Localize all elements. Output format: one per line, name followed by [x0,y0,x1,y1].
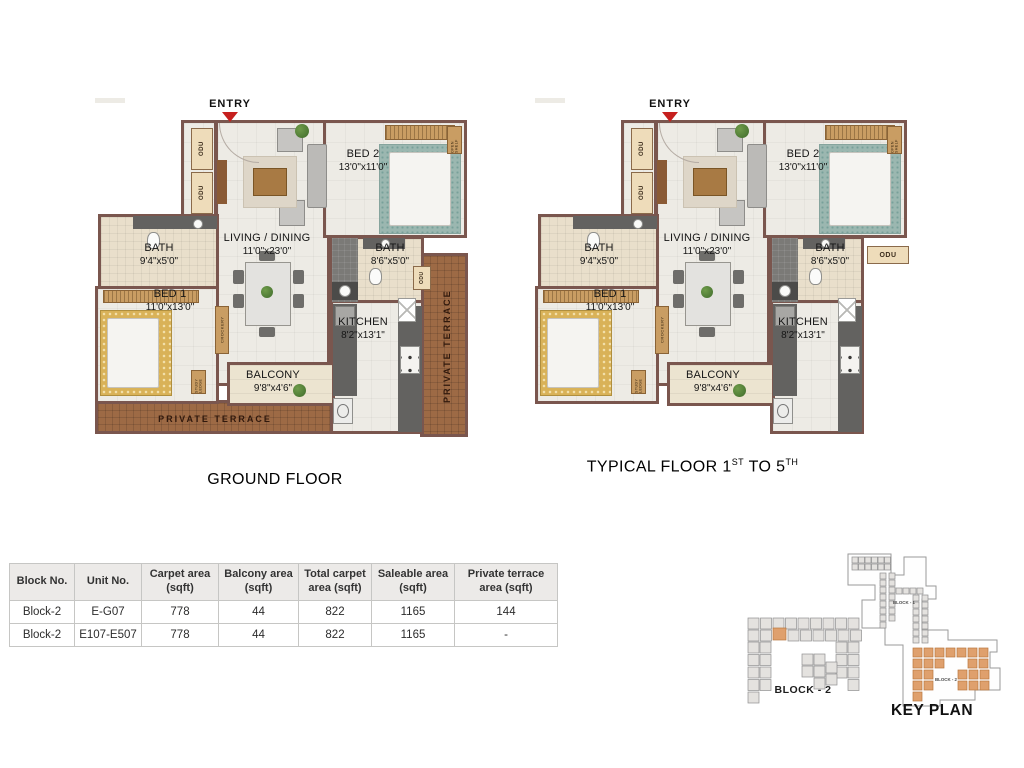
table-cell: 44 [219,624,299,647]
label-open-shelf: OPEN SHELF [887,126,902,154]
keyplan-unit [878,564,884,570]
floorplan-typical: LIVING / DINING11'0"x23'0"BED 213'0"x11'… [535,98,910,443]
wash-basin [339,285,351,297]
keyplan-unit [979,659,988,668]
room-label-bed2: BED 213'0"x11'0" [303,148,423,174]
keyplan-unit [880,615,886,621]
keyplan-unit [748,680,759,691]
table-cell: Block-2 [10,624,75,647]
block1-label: BLOCK - 1 [893,600,916,605]
table-header-row: Block No.Unit No.Carpet area (sqft)Balco… [10,564,558,601]
entry-opening [95,98,125,103]
keyplan-unit [760,667,771,678]
wardrobe [825,125,895,140]
keyplan-unit [913,692,922,701]
keyplan-unit [979,648,988,657]
col-header: Balcony area (sqft) [219,564,299,601]
private-terrace-label: PRIVATE TERRACE [98,414,332,424]
table-cell: 1165 [372,624,455,647]
keyplan-unit [802,654,813,665]
keyplan-unit [814,654,825,665]
keyplan-unit [836,655,847,666]
keyplan-unit [798,618,809,629]
keyplan-unit [748,692,759,703]
keyplan-unit [913,648,922,657]
private-terrace-label: PRIVATE TERRACE [439,286,455,406]
dining-chair [233,294,244,308]
keyplan-unit [913,609,919,615]
keyplan-unit [748,618,759,629]
keyplan-unit [859,557,865,563]
keyplan-unit [880,622,886,628]
room-name: BATH [330,242,450,256]
keyplan-unit [924,681,933,690]
table-plant [261,286,273,298]
room-label-living: LIVING / DINING11'0"x23'0" [647,232,767,258]
room-dim: 8'6"x5'0" [330,256,450,269]
label-study-ledge: STUDY LEDGE [631,370,646,394]
keyplan-unit [826,630,837,641]
entry-label: ENTRY [180,98,280,111]
keyplan-unit [922,637,928,643]
room-label-living: LIVING / DINING11'0"x23'0" [207,232,327,258]
entry-marker-icon [222,112,238,122]
dining-chair [673,294,684,308]
mini-block2-label: BLOCK - 2 [763,684,843,696]
room-dim: 9'4"x5'0" [539,256,659,269]
ground-floor-title: GROUND FLOOR [170,471,380,489]
keyplan-unit [913,659,922,668]
dining-chair [733,294,744,308]
washing-machine [773,398,793,424]
room-label-bed1: BED 111'0"x13'0" [550,288,670,314]
keyplan-unit [761,618,772,629]
label-crockery: CROCKERY [655,306,669,354]
room-dim: 11'0"x13'0" [110,302,230,315]
keyplan-unit [859,564,865,570]
typical-title-text2: TO 5 [744,458,785,475]
room-dim: 13'0"x11'0" [303,162,423,175]
room-label-bed1: BED 111'0"x13'0" [110,288,230,314]
dining-chair [233,270,244,284]
table-cell: 144 [455,601,558,624]
toilet [369,268,382,285]
keyplan-unit [969,670,978,679]
keyplan-unit [880,601,886,607]
keyplan-unit [872,557,878,563]
table-cell: 822 [299,624,372,647]
keyplan-unit [910,588,916,594]
label-odu: ODU [631,128,653,170]
keyplan-unit [980,670,989,679]
floorplan-ground: PRIVATE TERRACEPRIVATE TERRACELIVING / D… [95,98,470,443]
keyplan-unit [889,615,895,621]
keyplan-unit [958,681,967,690]
dining-chair [733,270,744,284]
keyplan-unit [802,666,813,677]
room-dim: 9'8"x4'6" [653,383,773,396]
room-label-bath1: BATH9'4"x5'0" [539,242,659,268]
room-dim: 11'0"x23'0" [207,246,327,259]
label-crockery: CROCKERY [215,306,229,354]
keyplan-unit [748,642,759,653]
keyplan-unit [760,642,771,653]
table-cell: 44 [219,601,299,624]
room-label-bath1: BATH9'4"x5'0" [99,242,219,268]
keyplan-unit [788,630,799,641]
keyplan-unit [851,630,862,641]
dining-chair [699,327,715,337]
keyplan-unit [823,618,834,629]
room-name: BED 2 [743,148,863,162]
room-name: BALCONY [213,369,333,383]
label-odu: ODU [413,266,431,290]
keyplan-unit [917,588,923,594]
keyplan-unit [885,557,891,563]
keyplan-unit [913,637,919,643]
room-name: BED 1 [110,288,230,302]
label-odu: ODU [867,246,909,264]
washing-machine [333,398,353,424]
plant [735,124,749,138]
dining-chair [293,294,304,308]
wash-basin [633,219,643,229]
keyplan-unit [922,602,928,608]
keyplan-unit [848,618,859,629]
stove [400,346,420,374]
room-name: KITCHEN [743,316,863,330]
brochure-canvas: PRIVATE TERRACEPRIVATE TERRACELIVING / D… [0,0,1024,768]
wash-basin [193,219,203,229]
bed [107,318,159,388]
col-header: Unit No. [75,564,142,601]
area-statement-table: Block No.Unit No.Carpet area (sqft)Balco… [9,563,558,647]
keyplan-unit [838,630,849,641]
keyplan-unit [896,588,902,594]
keyplan-unit [836,618,847,629]
room-label-bed2: BED 213'0"x11'0" [743,148,863,174]
table-cell: - [455,624,558,647]
room-dim: 9'8"x4'6" [213,383,333,396]
keyplan-unit [880,608,886,614]
keyplan-unit [935,648,944,657]
keyplan-unit [848,667,859,678]
room-name: KITCHEN [303,316,423,330]
col-header: Total carpet area (sqft) [299,564,372,601]
entry-opening [535,98,565,103]
keyplan-unit [872,564,878,570]
table-cell: 1165 [372,601,455,624]
keyplan-unit [922,616,928,622]
label-open-shelf: OPEN SHELF [447,126,462,154]
keyplan-unit [913,681,922,690]
keyplan-unit [922,595,928,601]
keyplan-unit [748,667,759,678]
room-label-kitchen: KITCHEN8'2"x13'1" [303,316,423,342]
table-cell: 778 [142,624,219,647]
plant [295,124,309,138]
table-cell: 778 [142,601,219,624]
label-odu: ODU [191,128,213,170]
typical-title-sup2: TH [785,457,798,467]
keyplan-unit [836,642,847,653]
table-cell: Block-2 [10,601,75,624]
keyplan-unit [924,648,933,657]
keyplan-unit [924,670,933,679]
label-study-ledge: STUDY LEDGE [191,370,206,394]
room-dim: 9'4"x5'0" [99,256,219,269]
keyplan-unit [922,623,928,629]
room-dim: 8'2"x13'1" [743,330,863,343]
stove [840,346,860,374]
keyplan-unit [957,648,966,657]
room-dim: 11'0"x13'0" [550,302,670,315]
room-dim: 8'2"x13'1" [303,330,423,343]
keyplan-unit [913,630,919,636]
keyplan-unit [865,557,871,563]
col-header: Carpet area (sqft) [142,564,219,601]
keyplan-unit [968,648,977,657]
table-cell: E-G07 [75,601,142,624]
room-name: BED 2 [303,148,423,162]
keyplan-unit [826,662,837,673]
keyplan-unit [889,608,895,614]
room-name: BATH [99,242,219,256]
keyplan-unit [848,642,859,653]
table-plant [701,286,713,298]
keyplan-unit [760,655,771,666]
keyplan-unit [748,630,759,641]
keyplan-unit [880,594,886,600]
keyplan-unit [880,580,886,586]
room-name: BED 1 [550,288,670,302]
coffee-table [253,168,287,196]
room-label-balcony: BALCONY9'8"x4'6" [213,369,333,395]
label-odu: ODU [631,172,653,214]
typical-title-text: TYPICAL FLOOR 1 [587,458,732,475]
keyplan-unit [958,670,967,679]
typical-floor-title: TYPICAL FLOOR 1ST TO 5TH [565,457,820,476]
keyplan-unit [922,630,928,636]
wardrobe [385,125,455,140]
keyplan-unit [801,630,812,641]
keyplan-unit [865,564,871,570]
col-header: Block No. [10,564,75,601]
keyplan-unit [811,618,822,629]
room-label-bath2: BATH8'6"x5'0" [330,242,450,268]
keyplan-unit [922,609,928,615]
dining-chair [259,327,275,337]
bath-counter [133,216,217,229]
keyplan-unit [878,557,884,563]
keyplan-unit [889,587,895,593]
entry-marker-icon [662,112,678,122]
dining-chair [673,270,684,284]
keyplan-unit [889,580,895,586]
tv-unit [657,160,667,204]
room-name: LIVING / DINING [207,232,327,246]
room-dim: 11'0"x23'0" [647,246,767,259]
bed [547,318,599,388]
keyplan-unit [968,659,977,668]
keyplan-unit [913,616,919,622]
coffee-table [693,168,727,196]
typical-title-sup1: ST [732,457,744,467]
block2-label: BLOCK - 2 [935,677,958,682]
keyplan-unit [748,655,759,666]
keyplan-unit [773,618,784,629]
label-odu: ODU [191,172,213,214]
wash-basin [779,285,791,297]
keyplan-unit [903,588,909,594]
keyplan-unit [889,573,895,579]
keyplan-unit [969,681,978,690]
keyplan-unit [924,659,933,668]
keyplan-unit [814,666,825,677]
keyplan-unit [852,564,858,570]
keyplan-unit [852,557,858,563]
table-cell: 822 [299,601,372,624]
col-header: Saleable area (sqft) [372,564,455,601]
room-name: BATH [539,242,659,256]
keyplan-unit [813,630,824,641]
col-header: Private terrace area (sqft) [455,564,558,601]
keyplan-unit [946,648,955,657]
tv-unit [217,160,227,204]
table-cell: E107-E507 [75,624,142,647]
room-dim: 13'0"x11'0" [743,162,863,175]
room-label-balcony: BALCONY9'8"x4'6" [653,369,773,395]
bath-counter [573,216,657,229]
key-plan-title: KEY PLAN [872,702,992,720]
room-name: LIVING / DINING [647,232,767,246]
room-name: BALCONY [653,369,773,383]
keyplan-unit [935,659,944,668]
keyplan-unit [885,564,891,570]
keyplan-unit [848,680,859,691]
entry-label: ENTRY [620,98,720,111]
dining-chair [293,270,304,284]
table-row: Block-2E-G07778448221165144 [10,601,558,624]
table-row: Block-2E107-E507778448221165- [10,624,558,647]
keyplan-unit [786,618,797,629]
toilet [809,268,822,285]
room-label-kitchen: KITCHEN8'2"x13'1" [743,316,863,342]
keyplan-unit [773,628,786,640]
keyplan-unit [980,681,989,690]
keyplan-unit [880,587,886,593]
keyplan-unit [913,670,922,679]
keyplan-unit [913,623,919,629]
keyplan-unit [880,573,886,579]
keyplan-unit [761,630,772,641]
keyplan-unit [848,655,859,666]
keyplan-unit [836,667,847,678]
